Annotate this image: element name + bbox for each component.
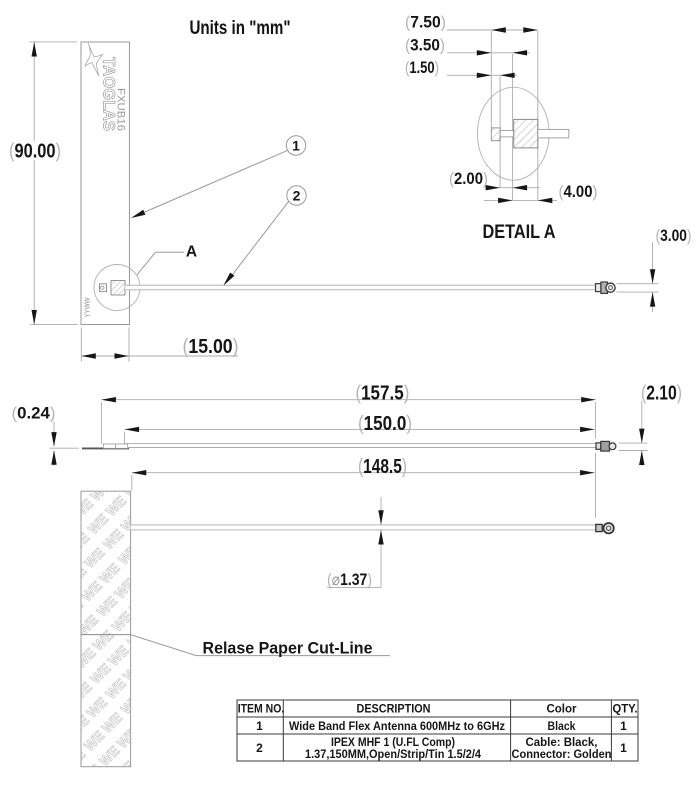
svg-text:Color: Color <box>547 702 577 716</box>
svg-text:Black: Black <box>548 719 576 733</box>
svg-text:(15.00): (15.00) <box>183 336 239 358</box>
svg-text:(2.10): (2.10) <box>641 383 682 405</box>
svg-text:Cable: Black,: Cable: Black, <box>526 737 598 749</box>
svg-text:1: 1 <box>620 741 627 755</box>
svg-text:(3.50): (3.50) <box>405 35 445 54</box>
svg-text:DETAIL A: DETAIL A <box>483 221 556 243</box>
svg-text:(3.00): (3.00) <box>656 226 692 245</box>
svg-text:Connector: Golden: Connector: Golden <box>512 749 612 761</box>
svg-text:IPEX MHF 1 (U.FL Comp): IPEX MHF 1 (U.FL Comp) <box>331 737 455 749</box>
svg-text:1.37,150MM,Open/Strip/Tin 1.5/: 1.37,150MM,Open/Strip/Tin 1.5/2/4 <box>305 749 482 761</box>
svg-text:(7.50): (7.50) <box>405 13 446 32</box>
svg-text:DESCRIPTION: DESCRIPTION <box>357 702 431 716</box>
svg-text:(4.00): (4.00) <box>559 182 598 201</box>
svg-text:2: 2 <box>293 188 301 204</box>
svg-text:QTY.: QTY. <box>613 702 638 716</box>
svg-text:(157.5): (157.5) <box>355 383 409 405</box>
svg-text:2: 2 <box>256 741 263 755</box>
svg-text:(⌀1.37): (⌀1.37) <box>327 570 372 589</box>
svg-text:1: 1 <box>620 719 627 733</box>
svg-text:(90.00): (90.00) <box>9 141 61 163</box>
svg-text:(150.0): (150.0) <box>358 413 412 435</box>
svg-text:1: 1 <box>292 138 300 154</box>
svg-text:(0.24): (0.24) <box>12 404 56 423</box>
svg-text:(148.5): (148.5) <box>358 456 407 478</box>
svg-text:A: A <box>186 244 197 261</box>
svg-text:(2.00): (2.00) <box>449 169 488 188</box>
svg-text:Units in "mm": Units in "mm" <box>190 18 291 39</box>
svg-text:FXUB16: FXUB16 <box>115 88 127 131</box>
svg-text:1: 1 <box>256 719 263 733</box>
svg-text:Wide Band Flex Antenna 600MHz: Wide Band Flex Antenna 600MHz to 6GHz <box>289 719 505 733</box>
svg-text:(1.50): (1.50) <box>405 58 439 77</box>
svg-text:Relase Paper Cut-Line: Relase Paper Cut-Line <box>203 638 373 657</box>
svg-text:YYWW: YYWW <box>85 297 92 317</box>
svg-text:ITEM NO.: ITEM NO. <box>238 702 285 716</box>
